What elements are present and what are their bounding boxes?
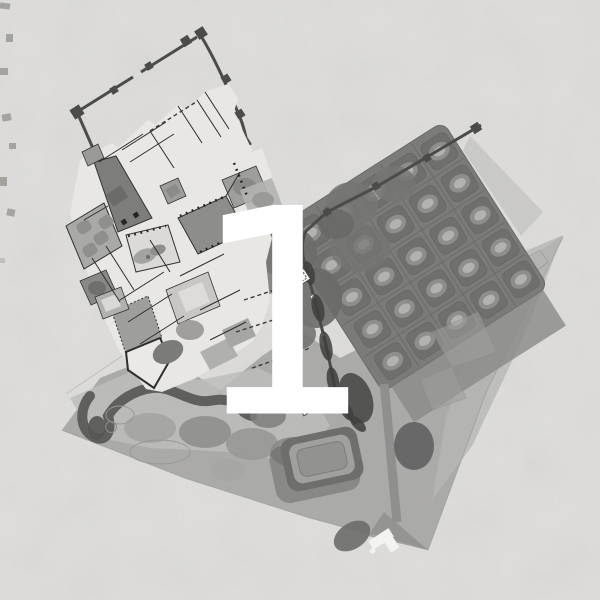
slide-number: 1 [193,150,372,479]
site-plan-figure: 1 [0,0,600,600]
site-plan-page: 1 [0,0,600,600]
slide-number-text: 1 [193,150,372,479]
